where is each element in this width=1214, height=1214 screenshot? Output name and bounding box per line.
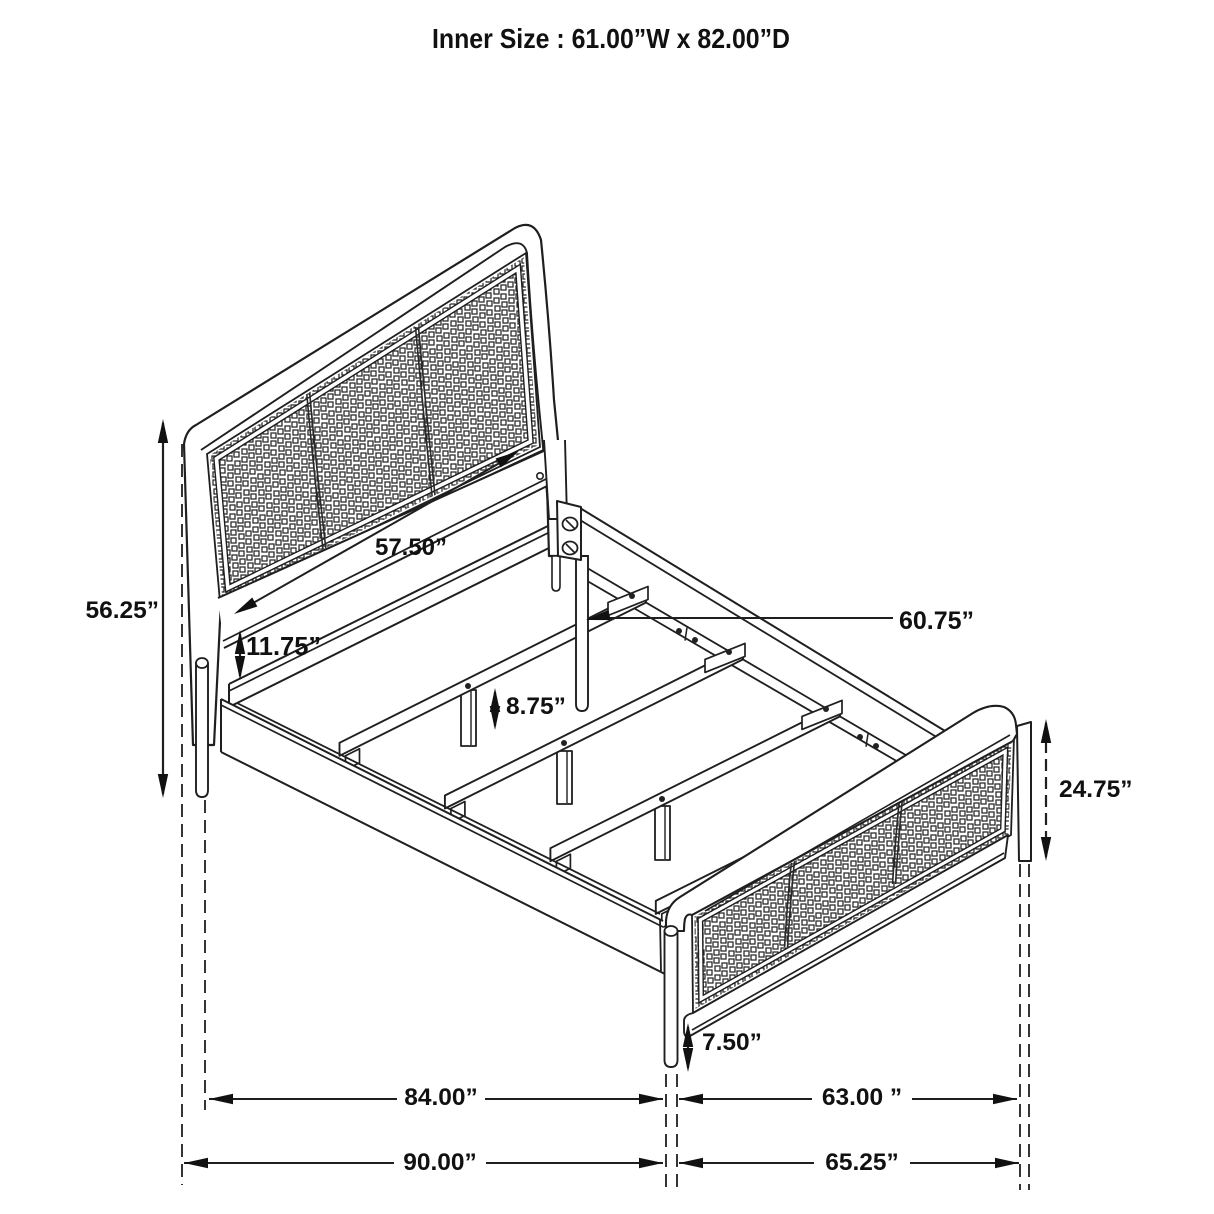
svg-text:11.75”: 11.75”	[246, 633, 321, 661]
svg-text:56.25”: 56.25”	[85, 597, 159, 624]
svg-text:60.75”: 60.75”	[899, 607, 974, 635]
svg-text:24.75”: 24.75”	[1059, 776, 1133, 803]
svg-text:Inner Size : 61.00”W x 82.00”D: Inner Size : 61.00”W x 82.00”D	[432, 23, 790, 54]
svg-text:57.50”: 57.50”	[375, 534, 447, 561]
svg-text:63.00 ”: 63.00 ”	[822, 1084, 902, 1111]
svg-text:65.25”: 65.25”	[825, 1149, 899, 1176]
svg-text:8.75”: 8.75”	[506, 693, 566, 720]
svg-text:84.00”: 84.00”	[404, 1084, 478, 1111]
svg-text:90.00”: 90.00”	[403, 1149, 477, 1176]
svg-text:7.50”: 7.50”	[702, 1029, 762, 1056]
